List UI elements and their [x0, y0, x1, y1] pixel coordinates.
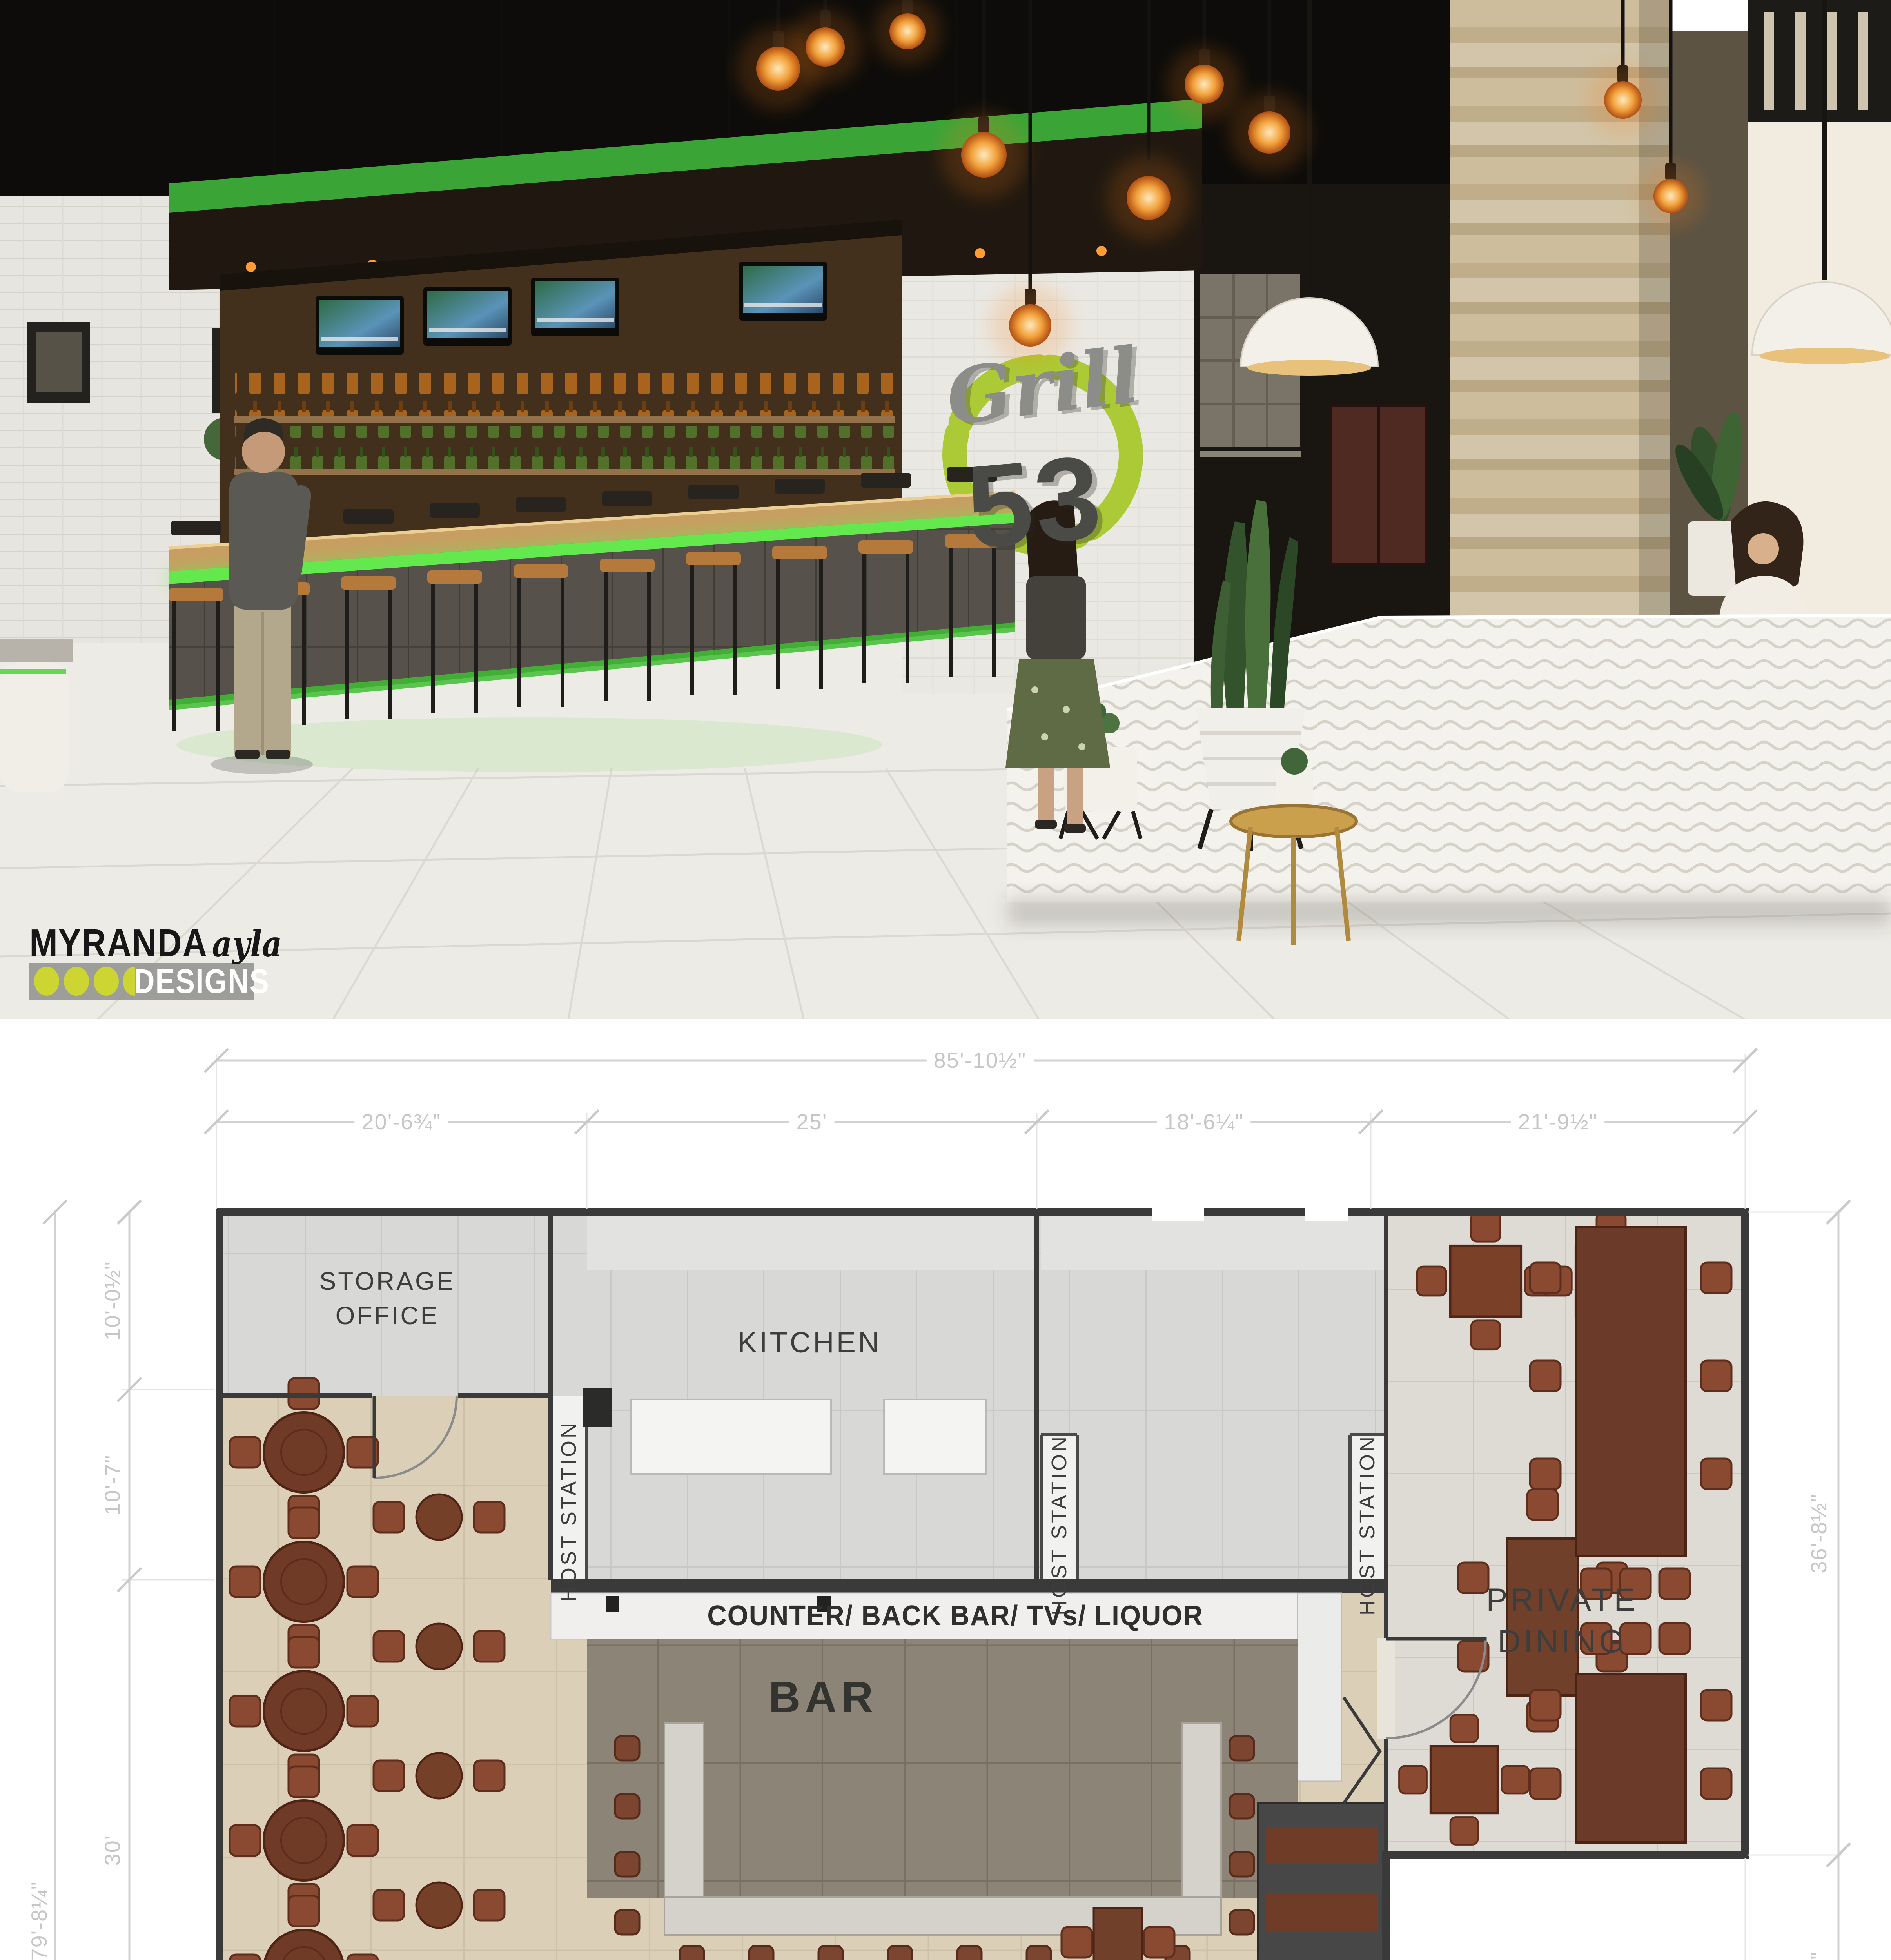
dim-top-4: 21'-9½" — [1511, 1110, 1604, 1134]
room-label-bar: BAR — [769, 1675, 878, 1719]
room-label-host-station: HOST STATION — [558, 1421, 579, 1602]
dim-right-1: 36'-8½" — [1807, 1486, 1831, 1580]
dim-left-3: 30' — [101, 1828, 124, 1873]
prep-table — [631, 1399, 831, 1474]
design-board: Grill 53 MYRANDAayla DESIGNS — [0, 0, 1891, 1960]
dim-top-3: 18'-6¼" — [1157, 1110, 1250, 1134]
label-counter-back-bar: COUNTER/ BACK BAR/ TVs/ LIQUOR — [707, 1602, 1203, 1630]
wait-station-shelving — [1258, 1803, 1386, 1960]
dim-top-2: 25' — [789, 1110, 835, 1134]
banquet-table — [1576, 1674, 1686, 1842]
dim-left-1: 10'-0½" — [101, 1254, 124, 1347]
banquet-table — [1576, 1227, 1686, 1556]
room-label-dining: DINING — [1498, 1626, 1627, 1658]
room-label-office: OFFICE — [336, 1303, 439, 1328]
dim-left-2: 10'-7" — [101, 1448, 124, 1523]
prep-table — [884, 1399, 986, 1474]
room-label-host-station: HOST STATION — [1357, 1434, 1378, 1615]
room-label-storage: STORAGE — [319, 1269, 456, 1294]
room-label-kitchen: KITCHEN — [738, 1328, 882, 1357]
dim-top-overall: 85'-10½" — [927, 1049, 1034, 1072]
dim-top-1: 20'-6¾" — [354, 1110, 448, 1134]
dim-right-2: 16'-10" — [1807, 1944, 1831, 1960]
floor-plan — [0, 0, 1891, 1960]
room-label-host-station: HOST STATION — [1049, 1434, 1070, 1615]
dim-left-overall: 79'-8¼" — [27, 1874, 51, 1960]
room-label-private: PRIVATE — [1486, 1584, 1638, 1616]
